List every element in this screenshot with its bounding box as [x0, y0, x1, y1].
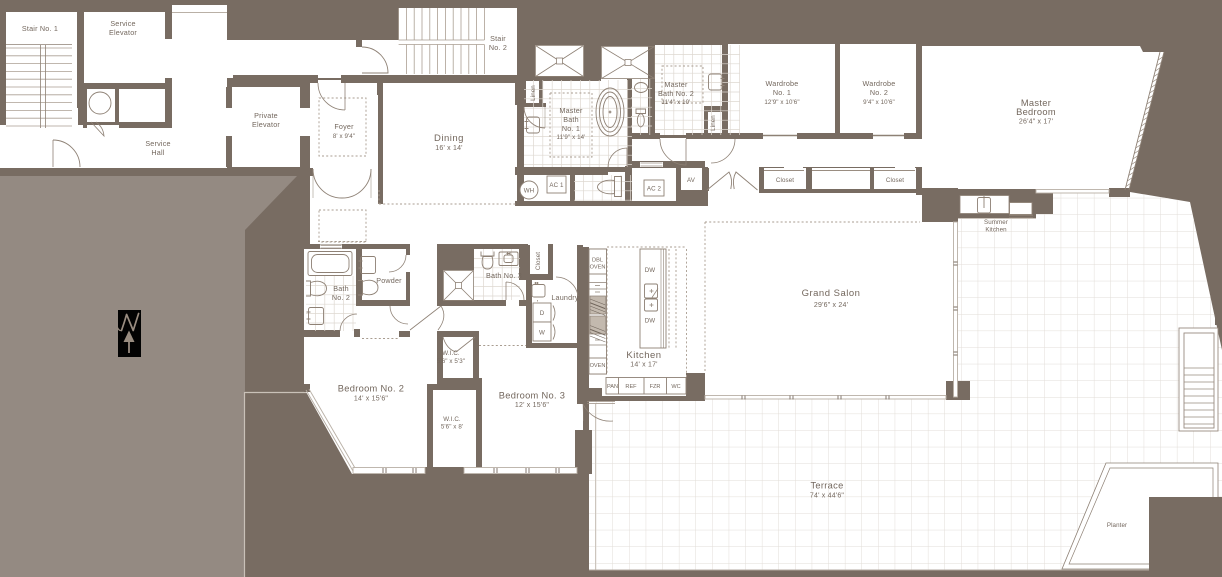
svg-text:OVEN: OVEN	[590, 264, 606, 270]
svg-text:Kitchen: Kitchen	[626, 350, 661, 361]
svg-text:PAN: PAN	[607, 384, 618, 390]
svg-text:FZR: FZR	[650, 384, 661, 390]
svg-text:Closet: Closet	[776, 177, 794, 184]
svg-text:74' x 44'6": 74' x 44'6"	[810, 493, 845, 500]
svg-text:No. 2: No. 2	[870, 88, 888, 97]
svg-text:Grand Salon: Grand Salon	[802, 288, 861, 299]
svg-text:Elevator: Elevator	[252, 120, 280, 129]
svg-text:Dining: Dining	[434, 133, 464, 144]
svg-text:9'4" x 10'6": 9'4" x 10'6"	[863, 99, 895, 106]
svg-text:DW: DW	[645, 318, 656, 325]
svg-text:W: W	[539, 330, 545, 337]
svg-text:Closet: Closet	[886, 177, 904, 184]
svg-text:DBL: DBL	[592, 258, 603, 264]
svg-text:OVEN: OVEN	[590, 363, 606, 369]
svg-text:Service: Service	[110, 19, 135, 28]
svg-text:Bedroom No. 3: Bedroom No. 3	[499, 391, 565, 401]
svg-text:8' x 9'4": 8' x 9'4"	[333, 133, 355, 140]
svg-text:12'9" x 10'6": 12'9" x 10'6"	[764, 99, 799, 106]
svg-text:No. 2: No. 2	[332, 293, 350, 302]
svg-text:11'9" x 14': 11'9" x 14'	[557, 134, 586, 141]
svg-text:WC: WC	[671, 384, 680, 390]
svg-text:Wardrobe: Wardrobe	[766, 79, 799, 88]
svg-text:Service: Service	[145, 139, 170, 148]
svg-text:REF: REF	[625, 384, 637, 390]
svg-text:Bedroom: Bedroom	[1016, 107, 1056, 117]
svg-text:26'4" x 17': 26'4" x 17'	[1019, 119, 1053, 126]
svg-text:Private: Private	[254, 111, 278, 120]
svg-text:D: D	[540, 310, 545, 317]
svg-text:Stair No. 1: Stair No. 1	[22, 24, 58, 33]
svg-text:Bath: Bath	[333, 284, 349, 293]
svg-text:No. 1: No. 1	[773, 88, 791, 97]
svg-text:Kitchen: Kitchen	[985, 227, 1007, 234]
svg-text:14' x 15'6": 14' x 15'6"	[354, 396, 389, 403]
svg-text:Bedroom No. 2: Bedroom No. 2	[338, 384, 404, 394]
svg-text:Linen: Linen	[530, 85, 537, 101]
svg-text:12' x 15'6": 12' x 15'6"	[515, 402, 550, 409]
svg-text:Bath: Bath	[563, 115, 579, 124]
svg-text:Hall: Hall	[151, 148, 164, 157]
svg-text:14' x 17': 14' x 17'	[630, 362, 657, 369]
svg-text:AC 1: AC 1	[549, 182, 564, 189]
svg-text:5'6" x 8': 5'6" x 8'	[441, 424, 463, 431]
svg-text:5'6" x 5'3": 5'6" x 5'3"	[437, 358, 465, 365]
svg-text:No. 1: No. 1	[562, 124, 580, 133]
svg-text:29'6" x 24': 29'6" x 24'	[814, 302, 848, 309]
svg-text:WH: WH	[524, 188, 535, 195]
svg-text:Terrace: Terrace	[810, 481, 843, 491]
svg-text:11'4" x 10': 11'4" x 10'	[662, 99, 691, 106]
svg-text:Linen: Linen	[710, 115, 717, 131]
svg-text:Master: Master	[559, 106, 583, 115]
svg-text:Elevator: Elevator	[109, 28, 137, 37]
svg-text:Powder: Powder	[376, 276, 402, 285]
svg-text:Closet: Closet	[535, 252, 542, 270]
svg-text:Bath No. 2: Bath No. 2	[658, 89, 694, 98]
svg-text:Summer: Summer	[984, 219, 1008, 226]
svg-text:No. 2: No. 2	[489, 43, 507, 52]
svg-text:Wardrobe: Wardrobe	[863, 79, 896, 88]
svg-text:Stair: Stair	[490, 34, 506, 43]
svg-text:Master: Master	[664, 80, 688, 89]
svg-text:16' x 14': 16' x 14'	[435, 145, 462, 152]
svg-text:W.I.C.: W.I.C.	[442, 350, 460, 357]
svg-text:Foyer: Foyer	[334, 122, 354, 131]
svg-text:Bath No. 3: Bath No. 3	[486, 271, 522, 280]
svg-text:W.I.C.: W.I.C.	[443, 416, 461, 423]
svg-text:DW: DW	[645, 267, 656, 274]
svg-text:AV: AV	[687, 177, 696, 184]
svg-text:Laundry: Laundry	[551, 293, 579, 302]
svg-text:AC 2: AC 2	[647, 186, 662, 193]
svg-text:Planter: Planter	[1107, 522, 1127, 529]
